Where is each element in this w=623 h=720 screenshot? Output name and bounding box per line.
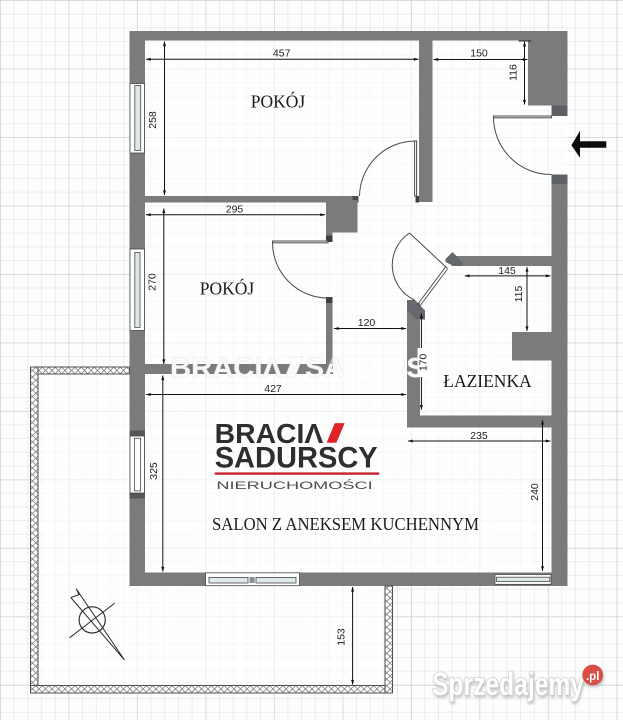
svg-text:.pl: .pl — [586, 671, 599, 683]
svg-text:116: 116 — [508, 64, 520, 81]
svg-text:270: 270 — [147, 273, 159, 291]
svg-text:ŁAZIENKA: ŁAZIENKA — [443, 371, 532, 391]
svg-text:POKÓJ: POKÓJ — [251, 92, 306, 112]
svg-text:427: 427 — [264, 383, 282, 395]
svg-text:153: 153 — [335, 628, 347, 646]
svg-text:115: 115 — [513, 285, 525, 302]
svg-text:POKÓJ: POKÓJ — [200, 279, 255, 299]
svg-text:Sprzedajemy: Sprzedajemy — [432, 666, 584, 702]
svg-text:235: 235 — [470, 430, 488, 442]
svg-text:457: 457 — [273, 48, 291, 60]
svg-text:258: 258 — [147, 111, 159, 129]
svg-text:170: 170 — [417, 353, 429, 371]
svg-text:NIERUCHOMOŚCI: NIERUCHOMOŚCI — [216, 479, 372, 492]
svg-text:SADURSCY: SADURSCY — [215, 442, 378, 475]
svg-text:SALON Z ANEKSEM KUCHENNYM: SALON Z ANEKSEM KUCHENNYM — [212, 514, 479, 534]
svg-text:325: 325 — [148, 462, 160, 480]
svg-text:240: 240 — [529, 483, 541, 501]
svg-text:295: 295 — [226, 203, 244, 215]
svg-text:120: 120 — [358, 317, 376, 329]
svg-text:150: 150 — [470, 48, 488, 60]
svg-text:145: 145 — [498, 265, 516, 277]
